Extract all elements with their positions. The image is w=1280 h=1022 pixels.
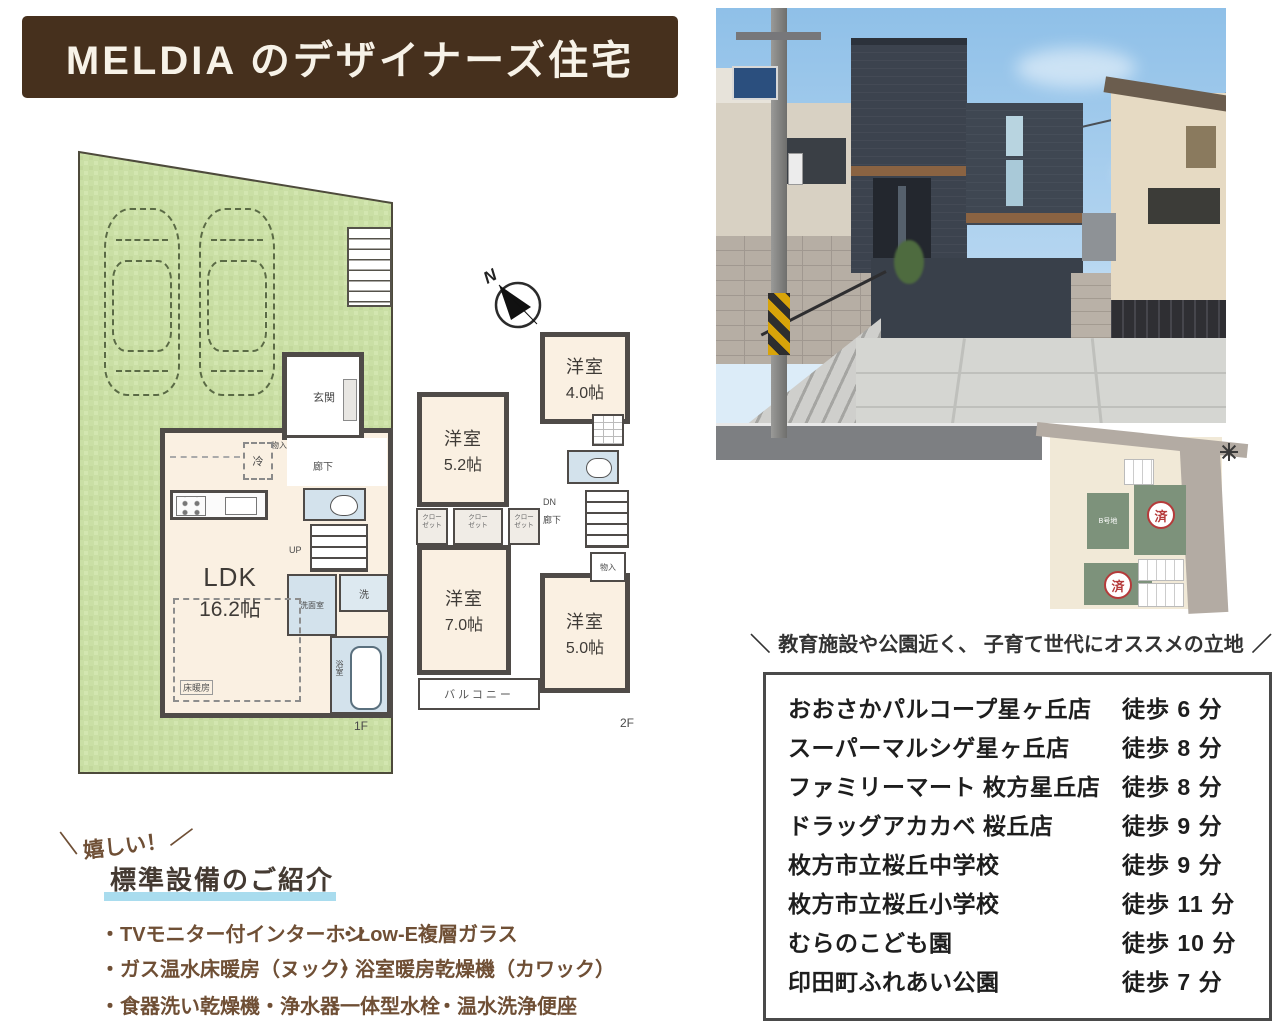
facility-name: ドラッグアカカベ 桜丘店 (788, 807, 1122, 841)
closet-1: クロー ゼット (416, 508, 448, 545)
sold-stamp: 済 (1147, 501, 1175, 529)
equipment-item: ・温水洗浄便座 (437, 990, 577, 1019)
toilet-1f (303, 488, 366, 521)
shelf-unit (592, 414, 624, 446)
storage-2f: 物入 (590, 552, 626, 582)
equipment-item: ・食器洗い乾燥機・浄水器一体型水栓 (100, 990, 440, 1019)
callout: ＼ 嬉しい！ ／ (58, 828, 192, 860)
facility-row: むらのこども園 徒歩 10 分 (788, 924, 1247, 963)
facility-walk-time: 徒歩 9 分 (1122, 807, 1247, 841)
facility-walk-time: 徒歩 8 分 (1122, 768, 1247, 802)
main-house-right-block (966, 103, 1083, 225)
stairs-up-label: UP (289, 545, 302, 555)
page-title: MELDIA のデザイナーズ住宅 (66, 28, 634, 86)
parking-strip (1138, 583, 1184, 607)
room-size: 7.0帖 (445, 611, 483, 635)
sink-icon (225, 497, 257, 515)
floor-heating-area: 床暖房 (173, 598, 301, 702)
washer-label: 洗 (359, 586, 369, 601)
compass-icon: N (478, 258, 550, 336)
facility-row: 枚方市立桜丘小学校 徒歩 11 分 (788, 885, 1247, 924)
bedroom-4j: 洋室 4.0帖 (540, 332, 630, 424)
facility-row: 枚方市立桜丘中学校 徒歩 9 分 (788, 846, 1247, 885)
tagline-slash-right: ／ (1252, 628, 1272, 657)
room-name: 洋室 (566, 608, 604, 634)
room-size: 4.0帖 (566, 379, 604, 403)
equipment-item: ・浴室暖房乾燥機（カワック） (335, 953, 615, 982)
facility-name: おおさかパルコープ星ヶ丘店 (788, 690, 1122, 724)
lot-sold-1: 済 (1134, 485, 1186, 555)
shoe-cabinet (343, 379, 357, 421)
pole-crossarm (736, 32, 821, 40)
closet-label: クロー (418, 514, 446, 522)
equipment-heading: 標準設備のご紹介 (110, 860, 334, 897)
wood-accent-band-left (851, 166, 967, 176)
car-rear-line (116, 370, 168, 372)
window-upper (1006, 116, 1023, 156)
parking-strip (1124, 459, 1154, 485)
stove-icon (176, 496, 206, 516)
entrance-label: 玄関 (313, 389, 335, 405)
room-name: 洋室 (444, 425, 482, 451)
ldk-name: LDK (178, 562, 282, 593)
facility-walk-time: 徒歩 10 分 (1122, 924, 1247, 958)
facility-row: 印田町ふれあい公園 徒歩 7 分 (788, 963, 1247, 1002)
bathroom-label: 浴室 (334, 660, 345, 676)
parking-car-outline-2 (199, 208, 275, 396)
facility-row: ファミリーマート 枚方星丘店 徒歩 8 分 (788, 768, 1247, 807)
floor1-label: 1F (354, 719, 368, 733)
hallway-1f: 廊下 物入 (287, 438, 387, 486)
facility-walk-time: 徒歩 7 分 (1122, 963, 1247, 997)
facility-name: 枚方市立桜丘小学校 (788, 885, 1122, 919)
right-neighbor-window (1148, 188, 1220, 224)
hallway-1f-label: 廊下 (313, 458, 333, 473)
right-block-wall (1071, 273, 1111, 343)
bathtub-icon (350, 646, 382, 710)
closet-2: クロー ゼット (453, 508, 503, 545)
bedroom-7j: 洋室 7.0帖 (417, 545, 511, 675)
room-name: 洋室 (445, 585, 483, 611)
entrance-room: 玄関 (282, 352, 364, 440)
right-neighbor-balcony (1186, 126, 1216, 168)
distant-house (1082, 213, 1116, 261)
toilet-icon (330, 495, 358, 516)
balcony: バルコニー (418, 678, 540, 710)
tagline-text: 教育施設や公園近く、 子育て世代にオススメの立地 (778, 628, 1244, 657)
entrance-shrub (894, 240, 924, 284)
facility-name: スーパーマルシゲ星ヶ丘店 (788, 729, 1122, 763)
wood-accent-band-right (966, 213, 1083, 223)
location-tagline: ＼ 教育施設や公園近く、 子育て世代にオススメの立地 ／ (750, 628, 1272, 657)
facility-row: おおさかパルコープ星ヶ丘店 徒歩 6 分 (788, 690, 1247, 729)
lot-b-label: B号地 (1099, 516, 1118, 526)
balcony-label: バルコニー (444, 686, 514, 702)
pole-hazard-stripe (768, 293, 790, 355)
facility-row: ドラッグアカカベ 桜丘店 徒歩 9 分 (788, 807, 1247, 846)
window-lower (1006, 160, 1023, 206)
facility-name: 枚方市立桜丘中学校 (788, 846, 1122, 880)
lot-b: B号地 (1087, 493, 1129, 549)
facility-walk-time: 徒歩 8 分 (1122, 729, 1247, 763)
toilet-2f (567, 450, 619, 484)
house-photo (716, 8, 1226, 460)
flyer-page: MELDIA のデザイナーズ住宅 玄関 廊下 物入 (0, 0, 1280, 1022)
closet-label: ゼット (418, 522, 446, 530)
room-name: 洋室 (566, 353, 604, 379)
fridge-label: 冷 (253, 453, 264, 469)
car-cabin (112, 260, 171, 352)
facility-walk-time: 徒歩 9 分 (1122, 846, 1247, 880)
bedroom-5_2j: 洋室 5.2帖 (417, 392, 509, 507)
facility-row: スーパーマルシゲ星ヶ丘店 徒歩 8 分 (788, 729, 1247, 768)
cabinet-dash-line (170, 444, 240, 458)
map-compass-star-icon (1220, 443, 1238, 461)
storage-2f-label: 物入 (600, 562, 616, 573)
title-banner: MELDIA のデザイナーズ住宅 (22, 16, 678, 98)
callout-slash-right: ／ (169, 821, 194, 854)
car-cabin (207, 260, 266, 352)
closet-label: ゼット (510, 522, 538, 530)
callout-text: 嬉しい！ (81, 825, 168, 865)
car-windshield-line (211, 239, 263, 241)
fridge-space: 冷 (243, 442, 273, 480)
facility-name: むらのこども園 (788, 924, 1122, 958)
parking-strip (1138, 559, 1184, 581)
facility-walk-time: 徒歩 6 分 (1122, 690, 1247, 724)
exterior-stairs (347, 227, 392, 307)
toilet-icon (586, 458, 612, 478)
facility-name: 印田町ふれあい公園 (788, 963, 1122, 997)
room-size: 5.0帖 (566, 634, 604, 658)
closet-label: クロー (455, 514, 501, 522)
tagline-slash-left: ＼ (750, 628, 770, 657)
compass-north-label: N (480, 265, 500, 288)
bedroom-5j: 洋室 5.0帖 (540, 573, 630, 693)
closet-label: ゼット (455, 522, 501, 530)
car-rear-line (211, 370, 263, 372)
stairs-2f (585, 490, 629, 548)
equipment-item: ・Low-E複層ガラス (338, 918, 518, 947)
washroom-label: 洗面室 (300, 600, 324, 611)
closet-3: クロー ゼット (508, 508, 540, 545)
facility-walk-time: 徒歩 11 分 (1122, 885, 1247, 919)
callout-slash-left: ＼ (56, 827, 81, 860)
stairs-down-label: DN (543, 497, 556, 507)
equipment-item: ・TVモニター付インターホン (100, 918, 366, 947)
washer-space: 洗 (339, 574, 389, 612)
storage-1f-label: 物入 (271, 440, 287, 451)
floor2-label: 2F (620, 716, 634, 730)
hallway-2f-label: 廊下 (543, 513, 561, 526)
stairs-1f (310, 524, 368, 572)
room-size: 5.2帖 (444, 451, 482, 475)
street-sign (732, 66, 778, 100)
kitchen-counter (170, 490, 268, 520)
facility-name: ファミリーマート 枚方星丘店 (788, 768, 1122, 802)
sold-stamp: 済 (1104, 571, 1132, 599)
facilities-box: おおさかパルコープ星ヶ丘店 徒歩 6 分 スーパーマルシゲ星ヶ丘店 徒歩 8 分… (763, 672, 1272, 1021)
pole-sign-small (788, 153, 803, 185)
car-windshield-line (116, 239, 168, 241)
bathroom: 浴室 (330, 636, 389, 714)
equipment-item: ・ガス温水床暖房（ヌック） (100, 953, 360, 982)
lot-mini-map: B号地 済 済 (1042, 423, 1242, 615)
floor-heating-label: 床暖房 (180, 680, 213, 695)
closet-label: クロー (510, 514, 538, 522)
parking-car-outline-1 (104, 208, 180, 396)
